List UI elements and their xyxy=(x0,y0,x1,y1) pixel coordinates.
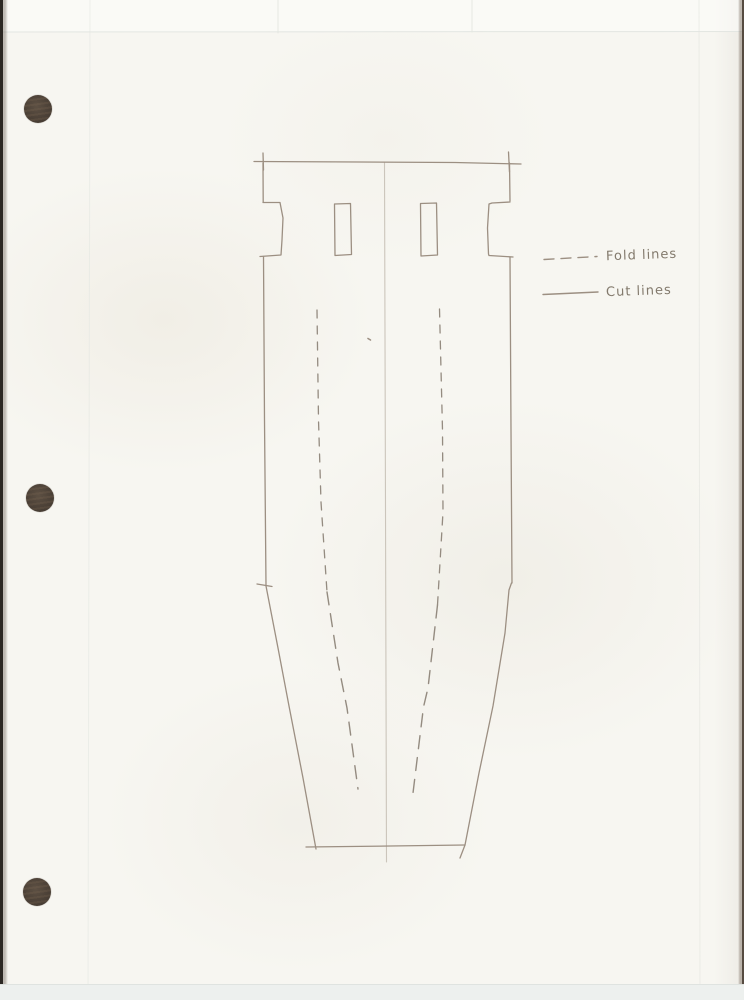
left-slant-edge xyxy=(266,586,316,849)
bottom-edge-line xyxy=(306,845,465,847)
punch-hole-3 xyxy=(23,878,51,906)
top-edge-line xyxy=(254,162,521,165)
fold-line-left-upper xyxy=(317,310,327,592)
fold-line-right-upper xyxy=(438,309,444,605)
left-edge-notch xyxy=(260,203,283,257)
legend-label-fold-lines: Fold lines xyxy=(606,247,678,264)
punch-hole-1 xyxy=(24,95,52,123)
scan-edge-right xyxy=(738,0,744,1000)
scan-edge-left xyxy=(0,0,8,1000)
slot-left xyxy=(335,204,352,256)
right-edge-mid xyxy=(510,257,512,583)
right-slant-edge xyxy=(460,583,512,858)
center-guide-line xyxy=(385,163,387,862)
punch-hole-2 xyxy=(26,484,54,512)
left-edge-mid xyxy=(264,257,267,586)
fold-line-right-lower xyxy=(413,605,438,793)
faint-grid-h-top xyxy=(0,32,744,33)
scan-bottom-edge xyxy=(0,984,744,1000)
legend-solid-sample xyxy=(543,292,598,295)
legend-label-cut-lines: Cut lines xyxy=(606,283,672,300)
right-edge-notch xyxy=(488,202,514,257)
pencil-speck xyxy=(368,339,371,341)
faint-grid-v-4 xyxy=(699,0,700,1000)
right-edge-upper xyxy=(510,163,511,201)
faint-grid-v-1 xyxy=(88,0,90,1000)
fold-line-left-lower xyxy=(327,592,358,789)
left-bend-tick xyxy=(257,584,272,587)
slot-right xyxy=(421,203,438,256)
scanned-page: Fold lines Cut lines xyxy=(0,0,744,1000)
legend-dashed-sample xyxy=(544,257,597,260)
pattern-drawing xyxy=(0,0,744,1000)
